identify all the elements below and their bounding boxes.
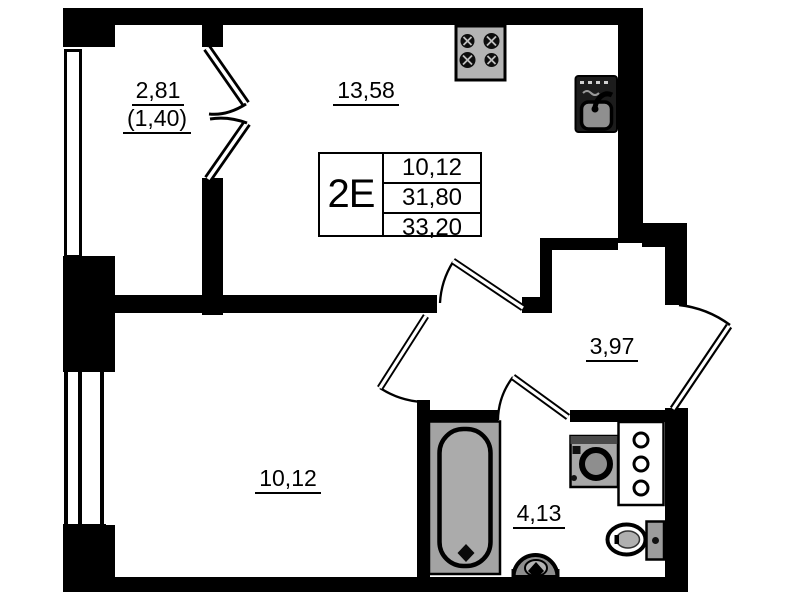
bedroom-door-icon — [380, 316, 426, 402]
bedroom-area-value: 10,12 — [255, 465, 321, 494]
toilet-icon — [608, 522, 665, 560]
utility-shaft-icon — [619, 422, 664, 505]
entrance-door-icon — [673, 305, 730, 409]
unit-apartment-area: 31,80 — [384, 184, 480, 214]
kitchen-area-value: 13,58 — [333, 77, 399, 106]
stove-icon — [456, 26, 505, 80]
balcony-area-value: 2,81 — [132, 77, 185, 106]
kitchen-area-label: 13,58 — [329, 77, 403, 106]
bathroom-area-label: 4,13 — [505, 500, 573, 529]
unit-info-table: 2E 10,12 31,80 33,20 — [318, 152, 482, 237]
bathtub-icon — [429, 422, 500, 575]
bedroom-area-label: 10,12 — [250, 465, 326, 494]
balcony-area-label: 2,81 — [123, 77, 193, 106]
balcony-reduced-area-label: (1,40) — [116, 105, 198, 134]
kitchen-sink-icon — [576, 76, 618, 132]
washbasin-icon — [512, 555, 560, 579]
bathroom-door-icon — [498, 377, 568, 420]
kitchen-door-icon — [440, 261, 523, 308]
unit-total-area: 33,20 — [384, 214, 480, 242]
balcony-reduced-area-value: (1,40) — [123, 105, 191, 134]
hallway-area-label: 3,97 — [579, 333, 645, 362]
washing-machine-icon — [571, 436, 619, 487]
balcony-door-icon — [207, 48, 247, 179]
unit-areas-column: 10,12 31,80 33,20 — [384, 154, 480, 235]
unit-living-area: 10,12 — [384, 154, 480, 184]
floor-plan: 2,81 (1,40) 13,58 3,97 10,12 4,13 2E 10,… — [0, 0, 799, 600]
unit-type-cell: 2E — [320, 154, 384, 235]
bathroom-area-value: 4,13 — [513, 500, 566, 529]
hallway-area-value: 3,97 — [586, 333, 639, 362]
